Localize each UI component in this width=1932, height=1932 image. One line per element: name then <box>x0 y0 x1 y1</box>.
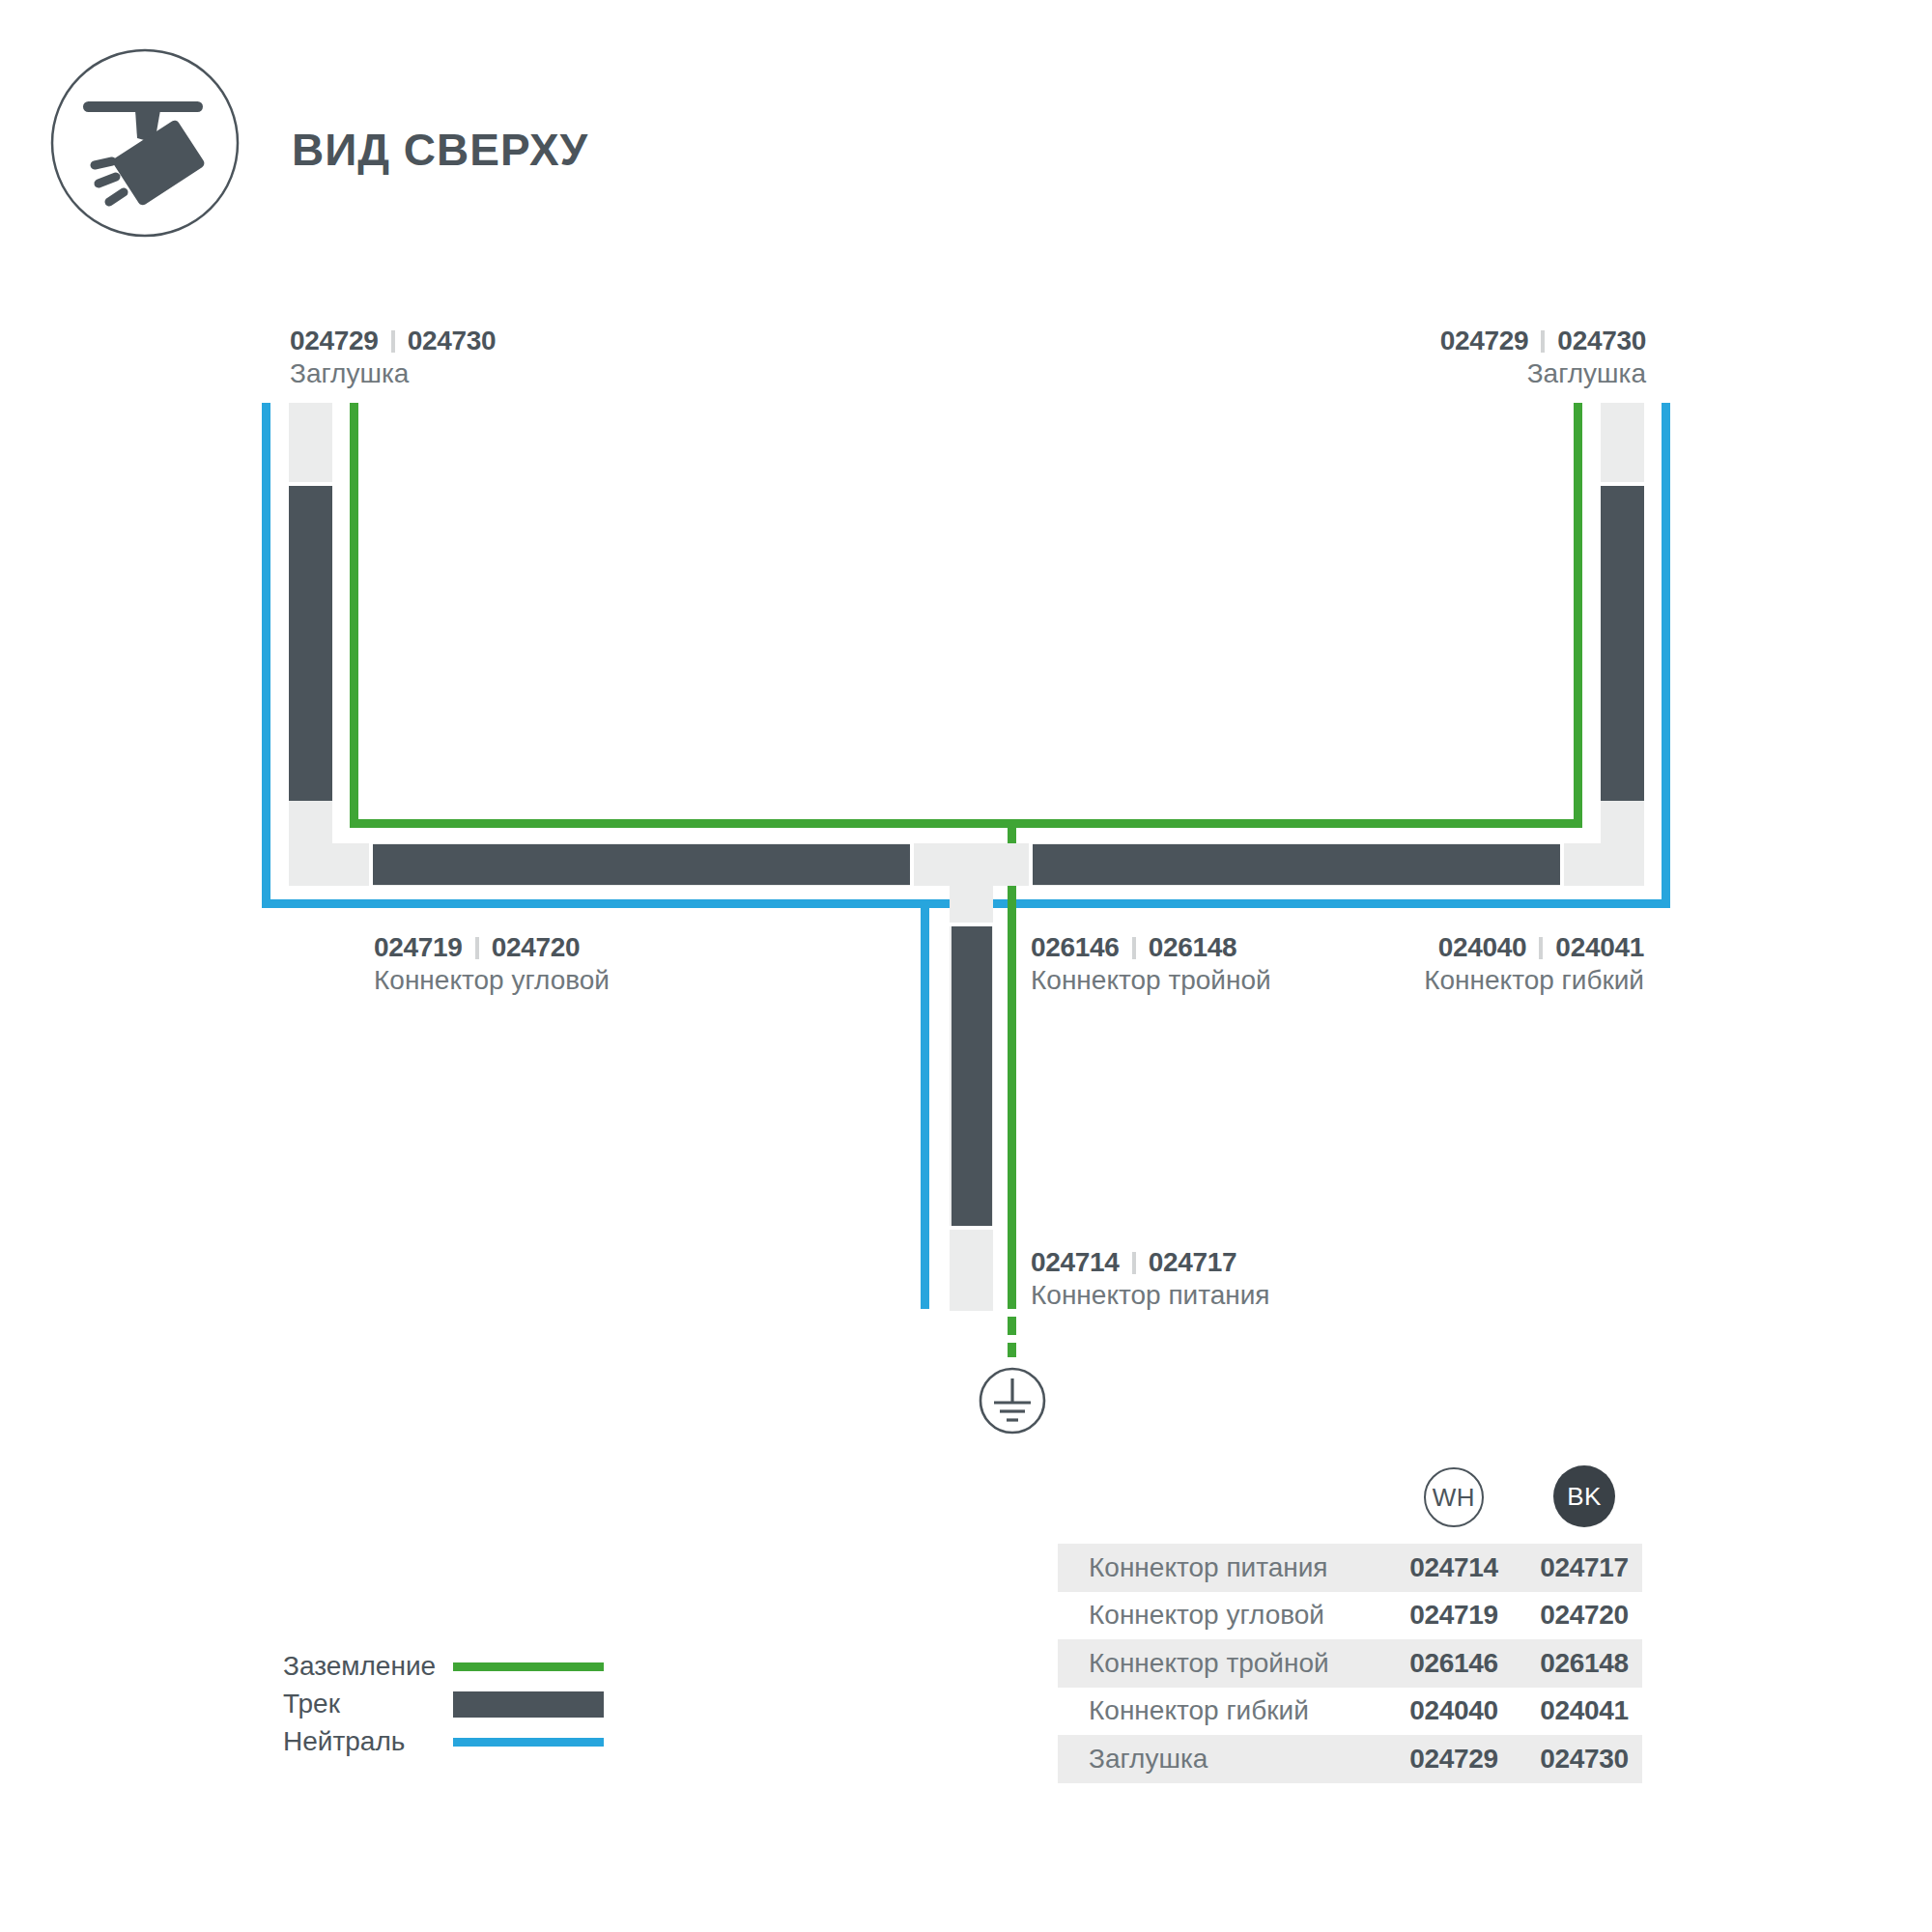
earth-ground-symbol <box>978 1366 1047 1435</box>
row-wh-code: 024714 <box>1381 1552 1526 1583</box>
label-corner-connector: 024719 024720 Коннектор угловой <box>374 931 610 996</box>
label-endcap-right: 024729 024730 Заглушка <box>1440 325 1646 389</box>
seam <box>369 843 373 886</box>
row-bk-code: 024041 <box>1526 1695 1642 1726</box>
row-bk-code: 026148 <box>1526 1648 1642 1679</box>
table-row: Заглушка 024729 024730 <box>1058 1735 1642 1783</box>
row-wh-code: 026146 <box>1381 1648 1526 1679</box>
seam <box>950 1226 993 1230</box>
table-row: Коннектор гибкий 024040 024041 <box>1058 1688 1642 1736</box>
ground-wire-right <box>1574 403 1582 828</box>
row-label: Коннектор тройной <box>1058 1648 1381 1679</box>
legend-label: Трек <box>283 1689 453 1719</box>
code-bk: 024041 <box>1555 931 1644 964</box>
code-divider <box>1132 1252 1136 1274</box>
track-segment-left <box>289 486 332 801</box>
part-name: Коннектор питания <box>1031 1279 1270 1311</box>
legend-label: Заземление <box>283 1651 453 1682</box>
row-bk-code: 024717 <box>1526 1552 1642 1583</box>
track-segment-stem <box>952 926 992 1226</box>
seam <box>1601 482 1644 486</box>
row-wh-code: 024729 <box>1381 1744 1526 1775</box>
code-bk: 026148 <box>1149 931 1237 964</box>
label-flex-connector: 024040 024041 Коннектор гибкий <box>1424 931 1644 996</box>
ground-wire-dash-2 <box>1008 1343 1016 1357</box>
label-triple-connector: 026146 026148 Коннектор тройной <box>1031 931 1271 996</box>
code-wh: 024729 <box>290 325 379 357</box>
label-endcap-left: 024729 024730 Заглушка <box>290 325 496 389</box>
row-label: Коннектор гибкий <box>1058 1695 1381 1726</box>
code-divider <box>1132 937 1136 959</box>
corner-codes: 024719 024720 <box>374 931 610 964</box>
code-bk: 024730 <box>1557 325 1646 357</box>
seam <box>289 482 332 486</box>
code-divider <box>475 937 479 959</box>
ground-wire-stem <box>1008 819 1016 1309</box>
part-name: Коннектор угловой <box>374 964 610 996</box>
track-segment-bottom-left <box>373 844 910 885</box>
track-spotlight-icon <box>48 46 241 240</box>
ground-wire-middle <box>350 819 1582 828</box>
legend-item-neutral: Нейтраль <box>283 1723 611 1760</box>
legend-item-ground: Заземление <box>283 1648 611 1685</box>
code-wh: 024719 <box>374 931 463 964</box>
label-power-connector: 024714 024717 Коннектор питания <box>1031 1246 1270 1311</box>
code-wh: 024040 <box>1438 931 1527 964</box>
row-label: Заглушка <box>1058 1744 1381 1775</box>
page: ВИД СВЕРХУ 024729 <box>0 0 1932 1932</box>
part-name: Заглушка <box>1440 357 1646 389</box>
code-bk: 024717 <box>1149 1246 1237 1279</box>
row-bk-code: 024730 <box>1526 1744 1642 1775</box>
row-label: Коннектор угловой <box>1058 1600 1381 1631</box>
triple-codes: 026146 026148 <box>1031 931 1271 964</box>
track-segment-bottom-right <box>1033 844 1560 885</box>
track-segment-right <box>1601 486 1644 801</box>
power-codes: 024714 024717 <box>1031 1246 1270 1279</box>
row-label: Коннектор питания <box>1058 1552 1381 1583</box>
seam <box>1029 843 1033 886</box>
neutral-wire-right <box>1662 403 1670 908</box>
seam <box>950 923 993 926</box>
ground-wire-dash-1 <box>1008 1317 1016 1335</box>
table-row: Коннектор угловой 024719 024720 <box>1058 1592 1642 1640</box>
part-name: Коннектор тройной <box>1031 964 1271 996</box>
code-wh: 026146 <box>1031 931 1120 964</box>
legend-item-track: Трек <box>283 1686 611 1722</box>
neutral-wire-left <box>262 403 270 908</box>
neutral-wire-swatch <box>453 1738 604 1747</box>
part-number-table: WH BK Коннектор питания 024714 024717 Ко… <box>1058 1465 1642 1783</box>
color-badge-black: BK <box>1553 1465 1615 1527</box>
page-title: ВИД СВЕРХУ <box>292 124 588 176</box>
table-row: Коннектор питания 024714 024717 <box>1058 1544 1642 1592</box>
code-divider <box>1541 330 1545 353</box>
code-wh: 024729 <box>1440 325 1529 357</box>
row-wh-code: 024719 <box>1381 1600 1526 1631</box>
code-divider <box>1539 937 1543 959</box>
part-name: Заглушка <box>290 357 496 389</box>
table-header: WH BK <box>1058 1465 1642 1533</box>
ground-wire-swatch <box>453 1662 604 1671</box>
row-wh-code: 024040 <box>1381 1695 1526 1726</box>
endcap-right-codes: 024729 024730 <box>1440 325 1646 357</box>
code-wh: 024714 <box>1031 1246 1120 1279</box>
color-badge-white: WH <box>1424 1467 1484 1527</box>
ground-wire-left <box>350 403 358 828</box>
endcap-left-codes: 024729 024730 <box>290 325 496 357</box>
track-swatch <box>453 1691 604 1718</box>
table-row: Коннектор тройной 026146 026148 <box>1058 1639 1642 1688</box>
legend-label: Нейтраль <box>283 1726 453 1757</box>
part-name: Коннектор гибкий <box>1424 964 1644 996</box>
seam <box>910 843 914 886</box>
code-bk: 024720 <box>492 931 581 964</box>
neutral-wire-stem <box>921 899 929 1309</box>
row-bk-code: 024720 <box>1526 1600 1642 1631</box>
code-divider <box>391 330 395 353</box>
seam <box>1560 843 1564 886</box>
code-bk: 024730 <box>408 325 497 357</box>
flex-codes: 024040 024041 <box>1424 931 1644 964</box>
